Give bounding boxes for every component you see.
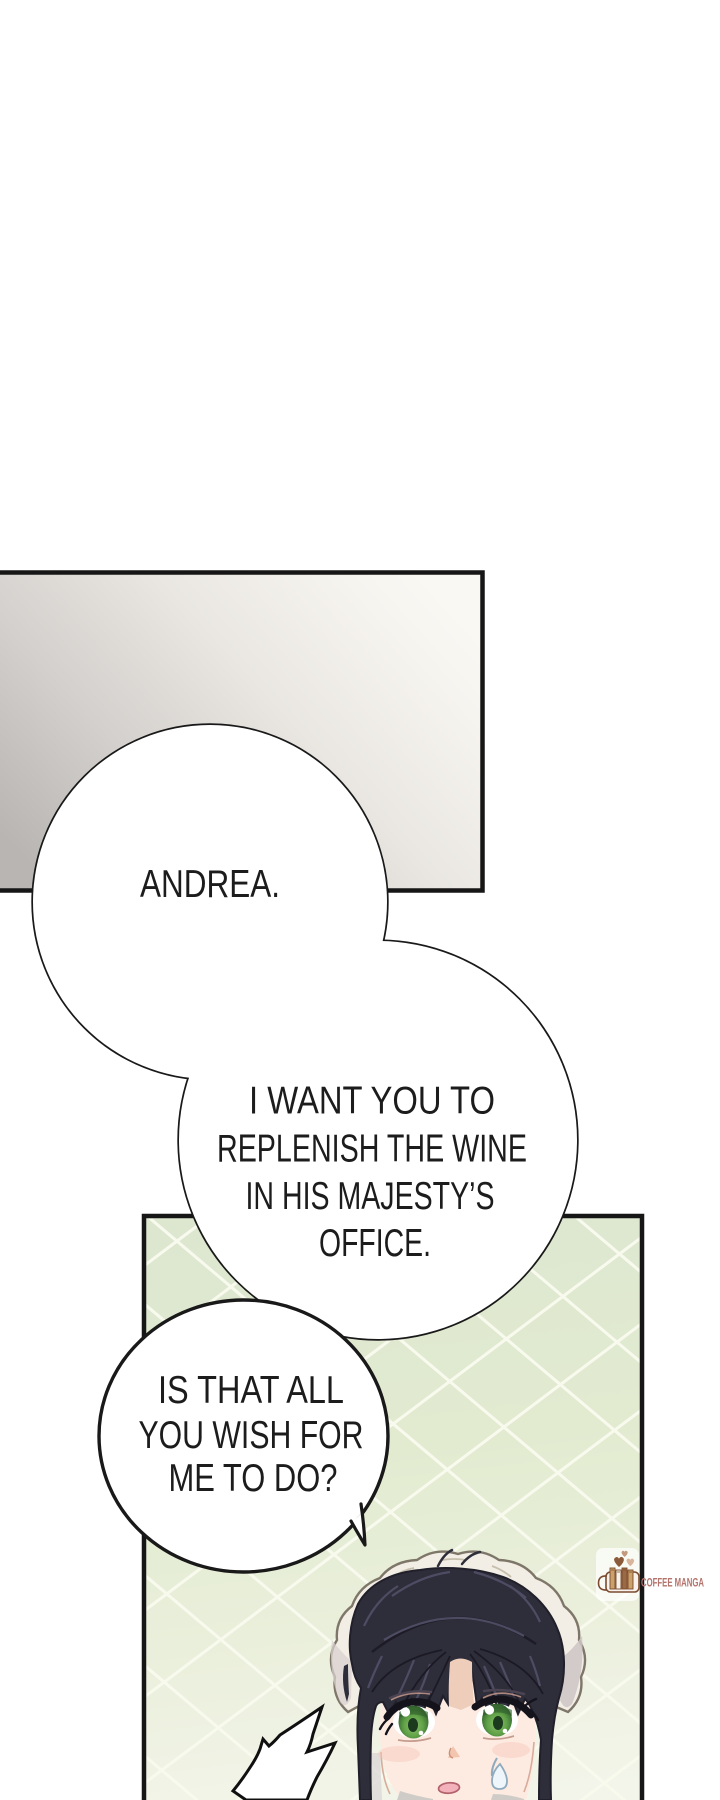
svg-text:IN HIS MAJESTY’S: IN HIS MAJESTY’S: [246, 1175, 495, 1218]
svg-text:ANDREA.: ANDREA.: [140, 863, 280, 906]
svg-text:I WANT YOU TO: I WANT YOU TO: [249, 1080, 495, 1123]
svg-text:ME TO DO?: ME TO DO?: [169, 1457, 338, 1500]
svg-text:REPLENISH THE WINE: REPLENISH THE WINE: [217, 1128, 527, 1171]
svg-text:YOU WISH FOR: YOU WISH FOR: [139, 1414, 364, 1457]
svg-text:OFFICE.: OFFICE.: [319, 1222, 431, 1265]
svg-text:COFFEE MANGA: COFFEE MANGA: [641, 1578, 704, 1590]
svg-text:IS THAT ALL: IS THAT ALL: [158, 1369, 344, 1412]
